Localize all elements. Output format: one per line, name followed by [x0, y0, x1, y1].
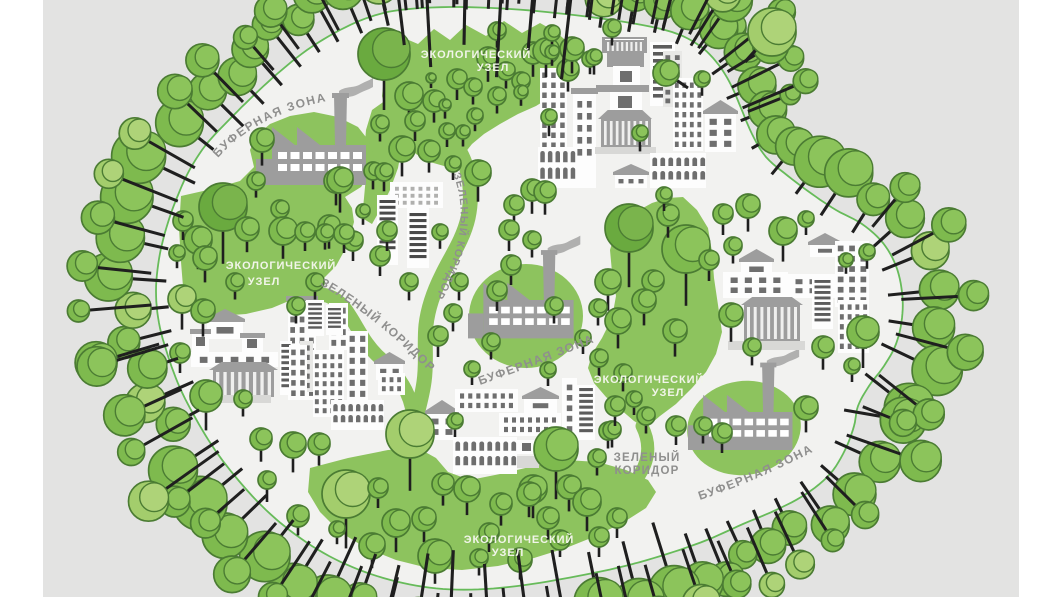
- svg-text:УЗЕЛ: УЗЕЛ: [477, 62, 509, 74]
- svg-text:КОРИДОР: КОРИДОР: [614, 465, 679, 477]
- svg-text:ЭКОЛОГИЧЕСКИЙ: ЭКОЛОГИЧЕСКИЙ: [464, 533, 574, 546]
- svg-text:УЗЕЛ: УЗЕЛ: [248, 276, 280, 288]
- svg-text:УЗЕЛ: УЗЕЛ: [652, 387, 684, 399]
- svg-text:ЭКОЛОГИЧЕСКИЙ: ЭКОЛОГИЧЕСКИЙ: [226, 259, 336, 272]
- svg-text:УЗЕЛ: УЗЕЛ: [492, 547, 524, 559]
- svg-text:ЭКОЛОГИЧЕСКИЙ: ЭКОЛОГИЧЕСКИЙ: [421, 48, 531, 61]
- svg-text:ЭКОЛОГИЧЕСКИЙ: ЭКОЛОГИЧЕСКИЙ: [594, 373, 704, 386]
- svg-text:ЗЕЛЕНЫЙ: ЗЕЛЕНЫЙ: [614, 451, 681, 464]
